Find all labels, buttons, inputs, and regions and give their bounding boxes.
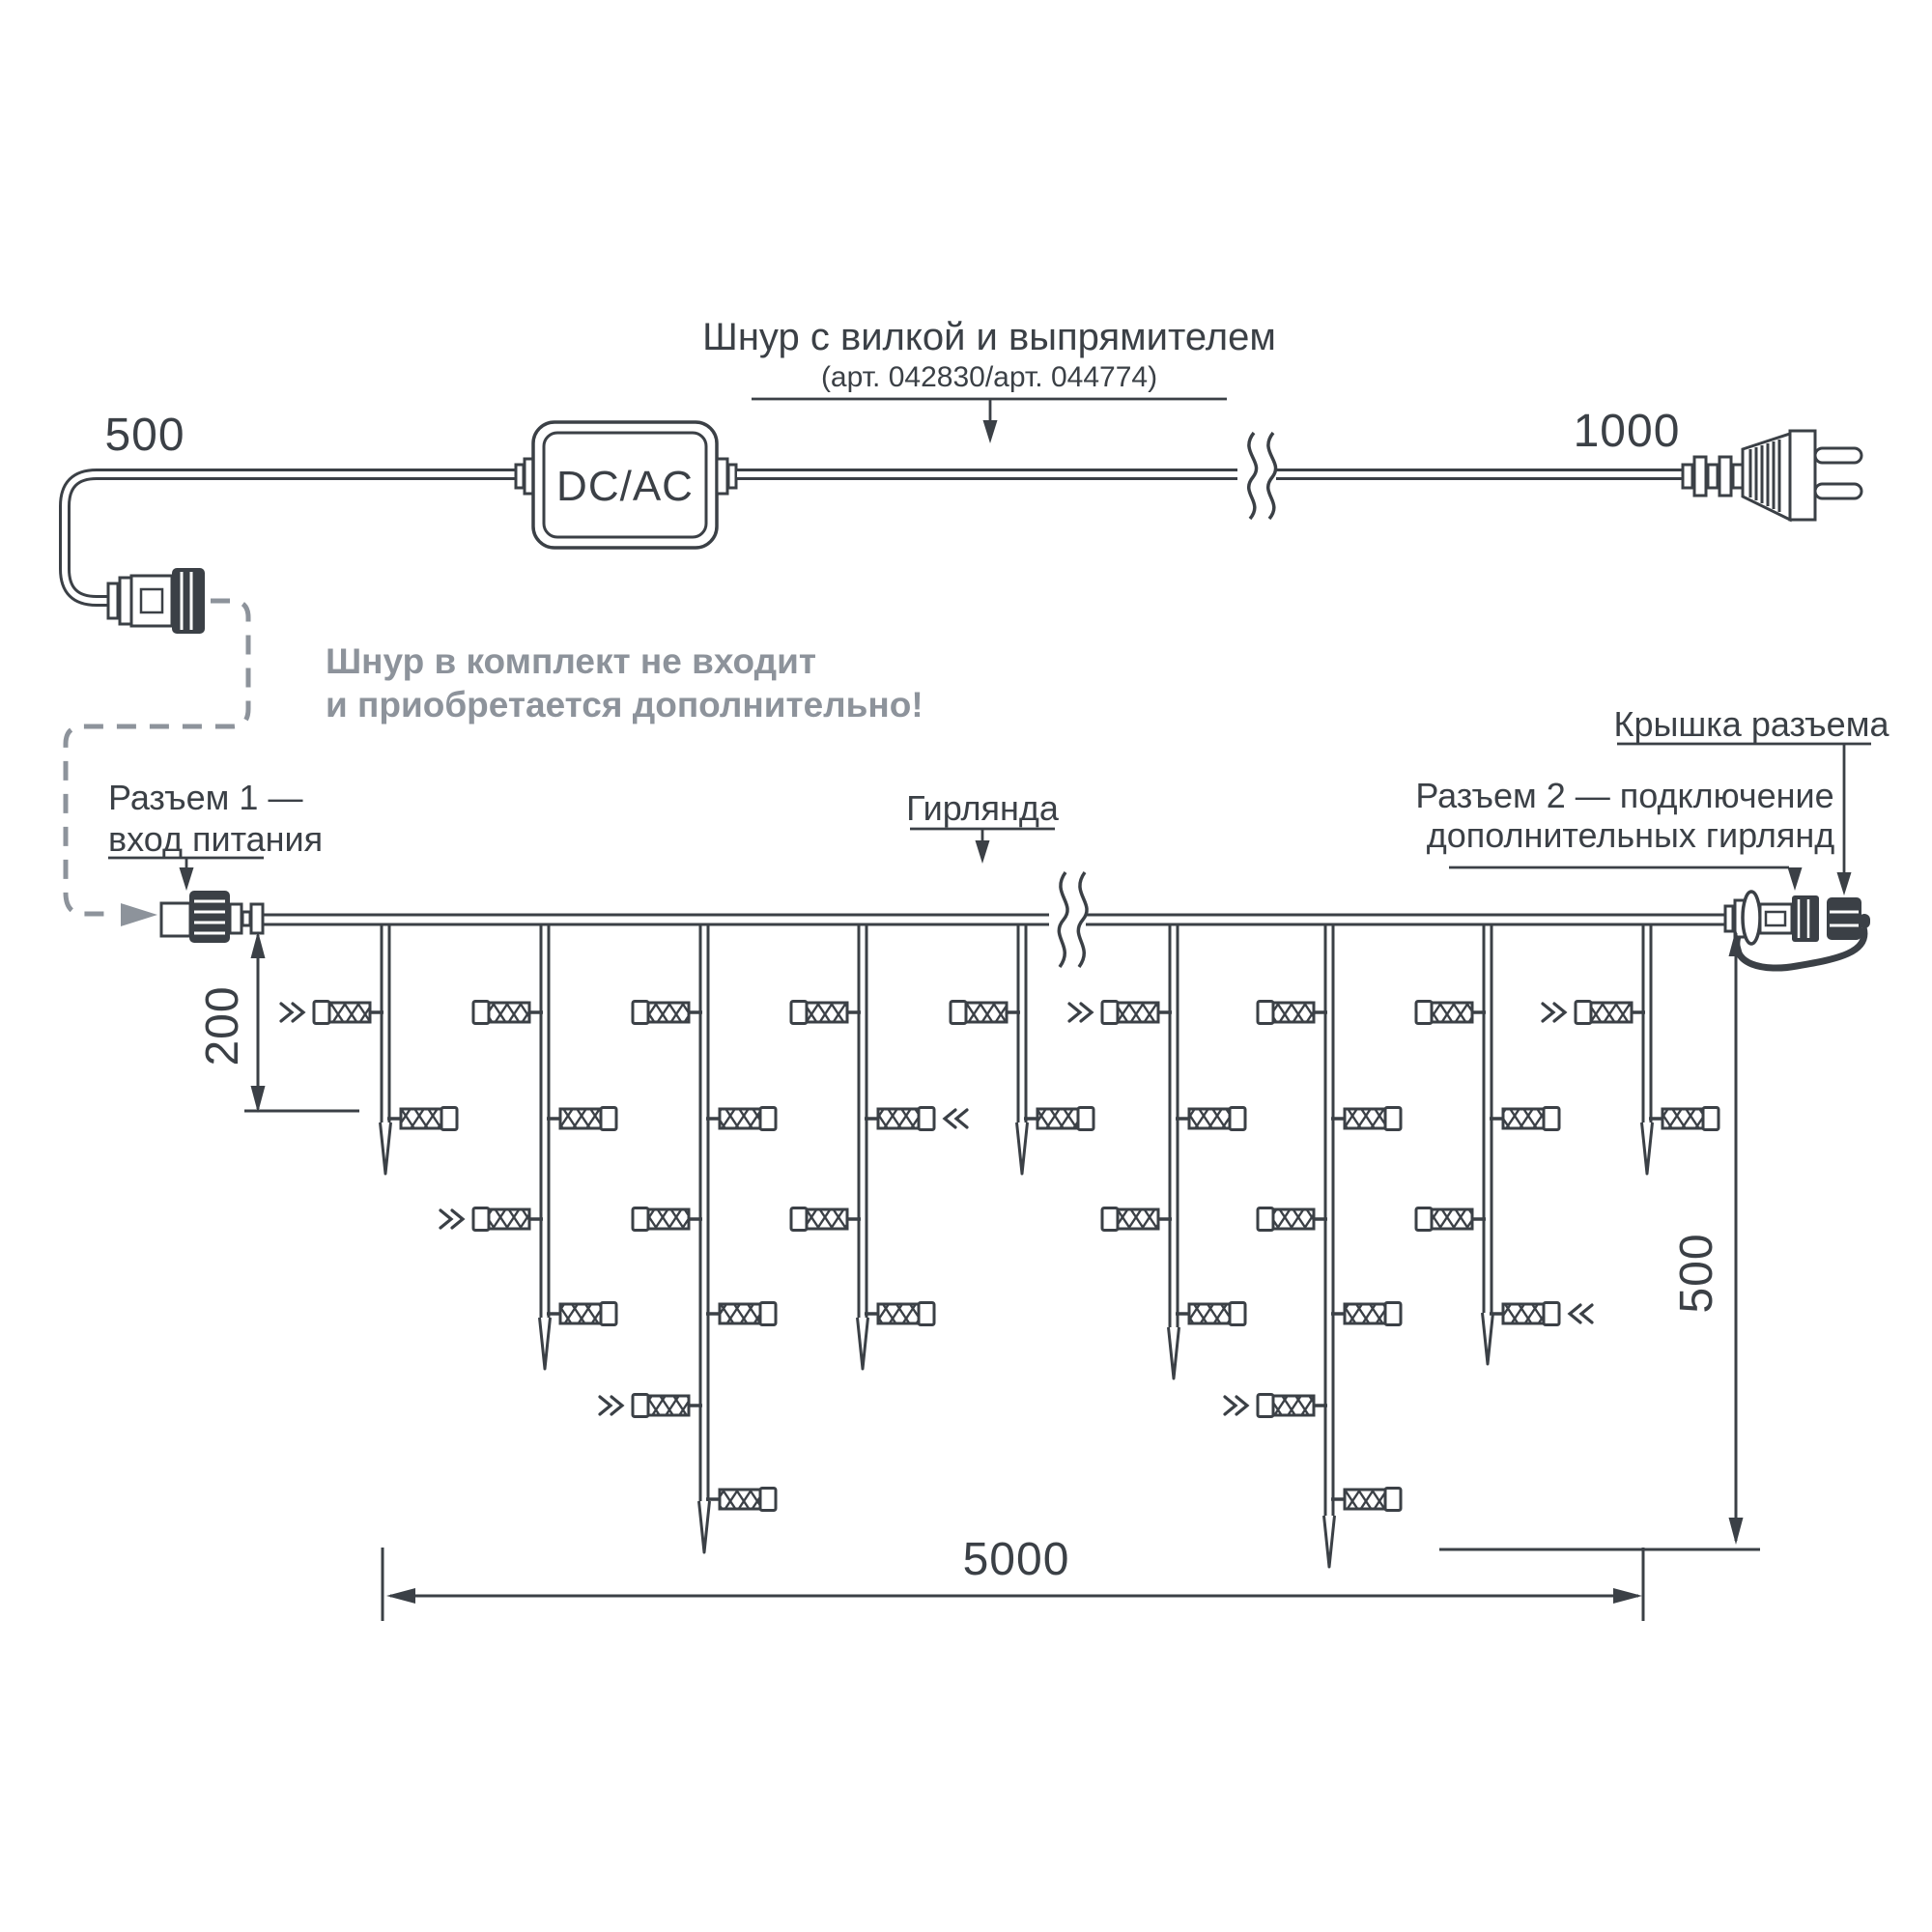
title-arrow-icon [983, 420, 998, 443]
dc-ac-label: DC/AC [556, 463, 694, 510]
blink-arrow-icon [1069, 1004, 1092, 1021]
connector-2-label-line2: дополнительных гирлянд [1427, 815, 1835, 855]
bulb-icon [1416, 1208, 1486, 1231]
cord-1000-label: 1000 [1574, 406, 1681, 457]
bulb-icon [706, 1489, 776, 1511]
blink-arrow-icon [1225, 1397, 1247, 1414]
bulbs-layer [281, 1002, 1719, 1511]
bulb-icon [600, 1395, 702, 1417]
bulb-icon [1490, 1303, 1592, 1325]
diagram-canvas: 200 500 5000 500 1000 DC/AC Шнур с вилко… [0, 0, 1932, 1932]
bulb-icon [1176, 1303, 1245, 1325]
bulb-icon [1331, 1108, 1401, 1130]
icicle-strand [858, 916, 868, 1369]
mains-plug-icon [1683, 431, 1861, 520]
conn2-arrow-icon [1788, 867, 1803, 891]
blink-arrow-icon [281, 1004, 303, 1021]
bulb-icon [473, 1002, 543, 1024]
bulb-icon [387, 1108, 457, 1130]
bulb-icon [1543, 1002, 1645, 1024]
bulb-icon [1258, 1208, 1327, 1231]
connector-1-label-line1: Разъем 1 — [108, 778, 302, 817]
garland-label: Гирлянда [906, 788, 1060, 828]
note-line-2: и приобретается дополнительно! [326, 685, 923, 724]
cord-right-icon [737, 433, 1683, 519]
bulb-icon [1331, 1303, 1401, 1325]
bulb-icon [281, 1002, 384, 1024]
connector-1-label-line2: вход питания [108, 819, 323, 859]
bulb-icon [633, 1002, 702, 1024]
cord-connector-icon [108, 568, 205, 634]
cord-title: Шнур с вилкой и выпрямителем [702, 316, 1276, 358]
bulb-icon [1069, 1002, 1172, 1024]
blink-arrow-icon [600, 1397, 622, 1414]
connector-2-label-line1: Разъем 2 — подключение [1415, 776, 1833, 815]
icicle-strand [1169, 916, 1179, 1378]
bulb-icon [633, 1208, 702, 1231]
note-line-1: Шнур в комплект не входит [326, 641, 816, 681]
cord-subtitle: (арт. 042830/арт. 044774) [821, 361, 1157, 393]
cord-500-label: 500 [104, 410, 185, 461]
icicle-strand [1642, 916, 1653, 1174]
connector-2-icon [1725, 892, 1870, 968]
bulb-icon [547, 1303, 616, 1325]
bulb-icon [440, 1208, 543, 1231]
blink-arrow-icon [1543, 1004, 1565, 1021]
bulb-icon [865, 1108, 967, 1130]
bulb-icon [547, 1108, 616, 1130]
dim-200-label: 200 [197, 985, 248, 1065]
bulb-icon [951, 1002, 1020, 1024]
bulb-icon [865, 1303, 934, 1325]
bulb-icon [706, 1303, 776, 1325]
dim-5000-label: 5000 [963, 1534, 1070, 1585]
garland-wire [263, 872, 1727, 967]
cap-label: Крышка разъема [1614, 704, 1890, 744]
cap-arrow-icon [1837, 872, 1852, 895]
connector-1-icon [161, 891, 263, 943]
bulb-icon [791, 1208, 861, 1231]
garland-arrow-icon [976, 840, 990, 864]
bulb-icon [1024, 1108, 1094, 1130]
bulb-icon [1258, 1002, 1327, 1024]
icicle-strand [540, 916, 551, 1369]
bulb-icon [1102, 1208, 1172, 1231]
bulb-icon [1416, 1002, 1486, 1024]
dashed-feed-path-icon [66, 601, 248, 926]
bulb-icon [791, 1002, 861, 1024]
bulb-icon [1331, 1489, 1401, 1511]
dimension-5000: 5000 [383, 1534, 1643, 1621]
bulb-icon [1490, 1108, 1559, 1130]
bulb-icon [1225, 1395, 1327, 1417]
conn1-arrow-icon [180, 867, 194, 891]
blink-arrow-icon [440, 1210, 463, 1228]
bulb-icon [1176, 1108, 1245, 1130]
bulb-icon [1649, 1108, 1719, 1130]
icicle-strand [1017, 916, 1028, 1174]
bulb-icon [706, 1108, 776, 1130]
blink-arrow-icon [945, 1110, 967, 1127]
icicle-strand [381, 916, 391, 1174]
icicle-strand [1483, 916, 1493, 1364]
dim-500-label: 500 [1671, 1233, 1722, 1313]
blink-arrow-icon [1570, 1305, 1592, 1322]
feed-arrow-icon [121, 903, 157, 926]
